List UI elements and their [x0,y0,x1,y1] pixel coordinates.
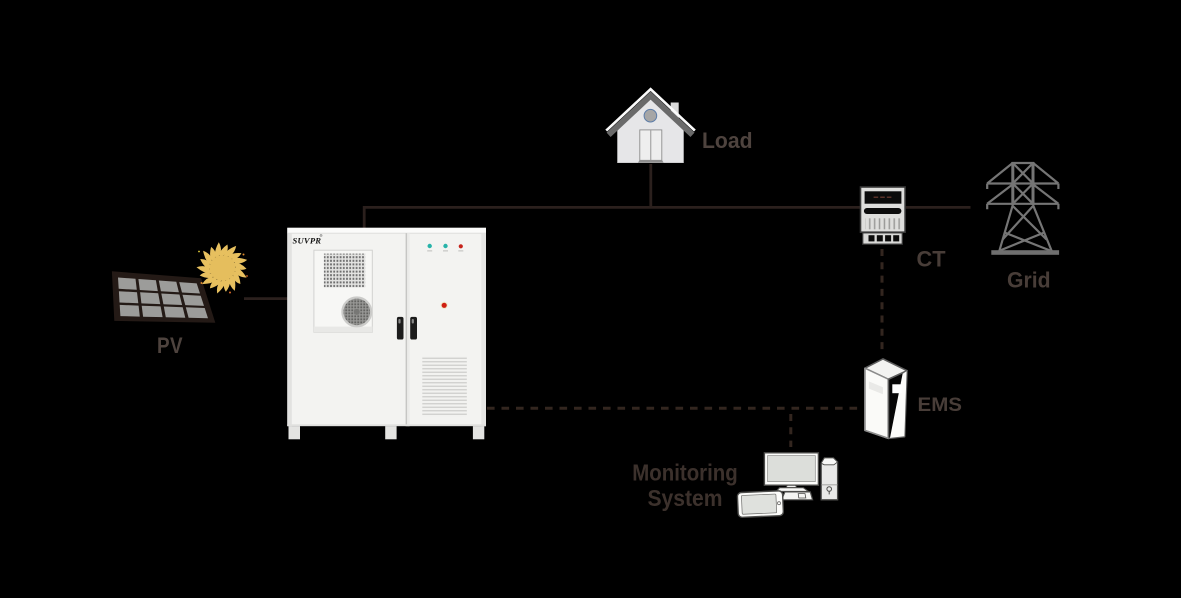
svg-text:EMS: EMS [918,395,963,416]
svg-text:®: ® [320,234,323,238]
svg-text:Load: Load [702,128,753,153]
svg-text:Grid: Grid [1007,268,1051,293]
svg-text:CT: CT [917,247,947,272]
svg-text:System: System [648,485,723,511]
svg-text:SUVPR: SUVPR [293,235,322,245]
svg-text:PV: PV [157,333,183,358]
svg-text:Monitoring: Monitoring [632,460,738,486]
